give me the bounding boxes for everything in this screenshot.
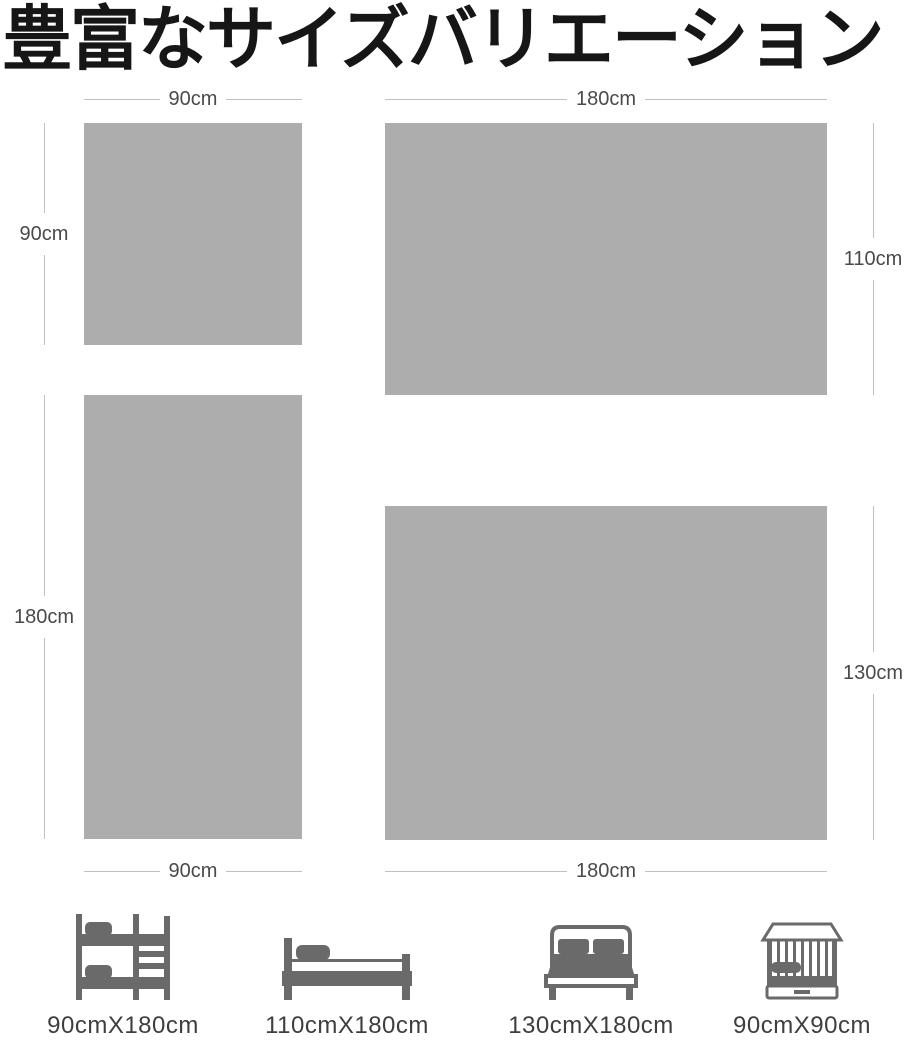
dimension-line	[226, 871, 302, 872]
crib-icon	[755, 905, 849, 1000]
width-label: 180cm	[576, 861, 636, 881]
single-bed-icon	[282, 905, 412, 1000]
bed-type-double: 130cmX180cm	[506, 905, 676, 1038]
bed-size-label: 110cmX180cm	[265, 1014, 429, 1038]
size-swatch-90x180	[84, 395, 302, 839]
size-swatch-180x110	[385, 123, 827, 395]
dimension-line	[645, 99, 827, 100]
dimension-line	[44, 123, 45, 213]
dimension-line	[645, 871, 827, 872]
width-label: 180cm	[576, 89, 636, 109]
width-dimension-90x90: 90cm	[84, 88, 302, 110]
height-label: 130cm	[843, 663, 903, 683]
dimension-line	[873, 280, 874, 395]
dimension-line	[44, 255, 45, 345]
width-dimension-180x110: 180cm	[385, 88, 827, 110]
dimension-line	[873, 123, 874, 238]
dimension-line	[44, 395, 45, 596]
size-swatch-90x90	[84, 123, 302, 345]
height-label: 90cm	[20, 224, 69, 244]
page-title: 豊富なサイズバリエーション	[2, 2, 906, 76]
width-dimension-90x180: 90cm	[84, 860, 302, 882]
dimension-line	[84, 99, 160, 100]
bed-size-label: 130cmX180cm	[508, 1014, 674, 1038]
width-dimension-180x130: 180cm	[385, 860, 827, 882]
bed-type-crib: 90cmX90cm	[717, 905, 887, 1038]
dimension-line	[873, 694, 874, 840]
dimension-line	[385, 99, 567, 100]
dimension-line	[873, 506, 874, 652]
height-dimension-180x130: 130cm	[845, 506, 901, 840]
height-dimension-90x180: 180cm	[16, 395, 72, 839]
double-bed-icon	[542, 905, 640, 1000]
dimension-line	[44, 638, 45, 839]
height-label: 110cm	[844, 249, 903, 269]
dimension-line	[84, 871, 160, 872]
width-label: 90cm	[169, 89, 218, 109]
bed-type-single: 110cmX180cm	[262, 905, 432, 1038]
height-dimension-90x90: 90cm	[16, 123, 72, 345]
height-label: 180cm	[14, 607, 74, 627]
bed-type-bunk: 90cmX180cm	[38, 905, 208, 1038]
size-swatch-180x130	[385, 506, 827, 840]
dimension-line	[385, 871, 567, 872]
height-dimension-180x110: 110cm	[845, 123, 901, 395]
size-variation-infographic: 豊富なサイズバリエーション 90cm 90cm 180cm 110cm	[0, 0, 908, 1044]
bed-size-label: 90cmX90cm	[733, 1014, 871, 1038]
bunk-bed-icon	[73, 905, 173, 1000]
bed-size-label: 90cmX180cm	[47, 1014, 199, 1038]
width-label: 90cm	[169, 861, 218, 881]
dimension-line	[226, 99, 302, 100]
